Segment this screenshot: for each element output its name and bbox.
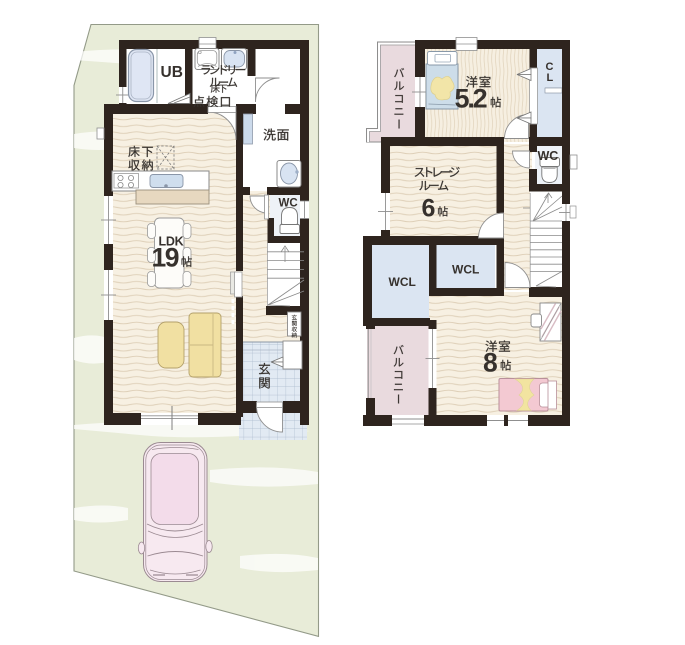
svg-text:5.2: 5.2 [455,84,487,114]
svg-text:UB: UB [161,64,183,81]
svg-text:WC: WC [538,149,559,163]
svg-text:WC: WC [279,198,298,210]
svg-text:WCL: WCL [452,263,479,277]
svg-text:L: L [547,72,554,84]
svg-text:WCL: WCL [389,275,416,289]
svg-text:19: 19 [152,243,179,273]
svg-text:8: 8 [483,348,498,378]
svg-text:6: 6 [422,195,436,223]
